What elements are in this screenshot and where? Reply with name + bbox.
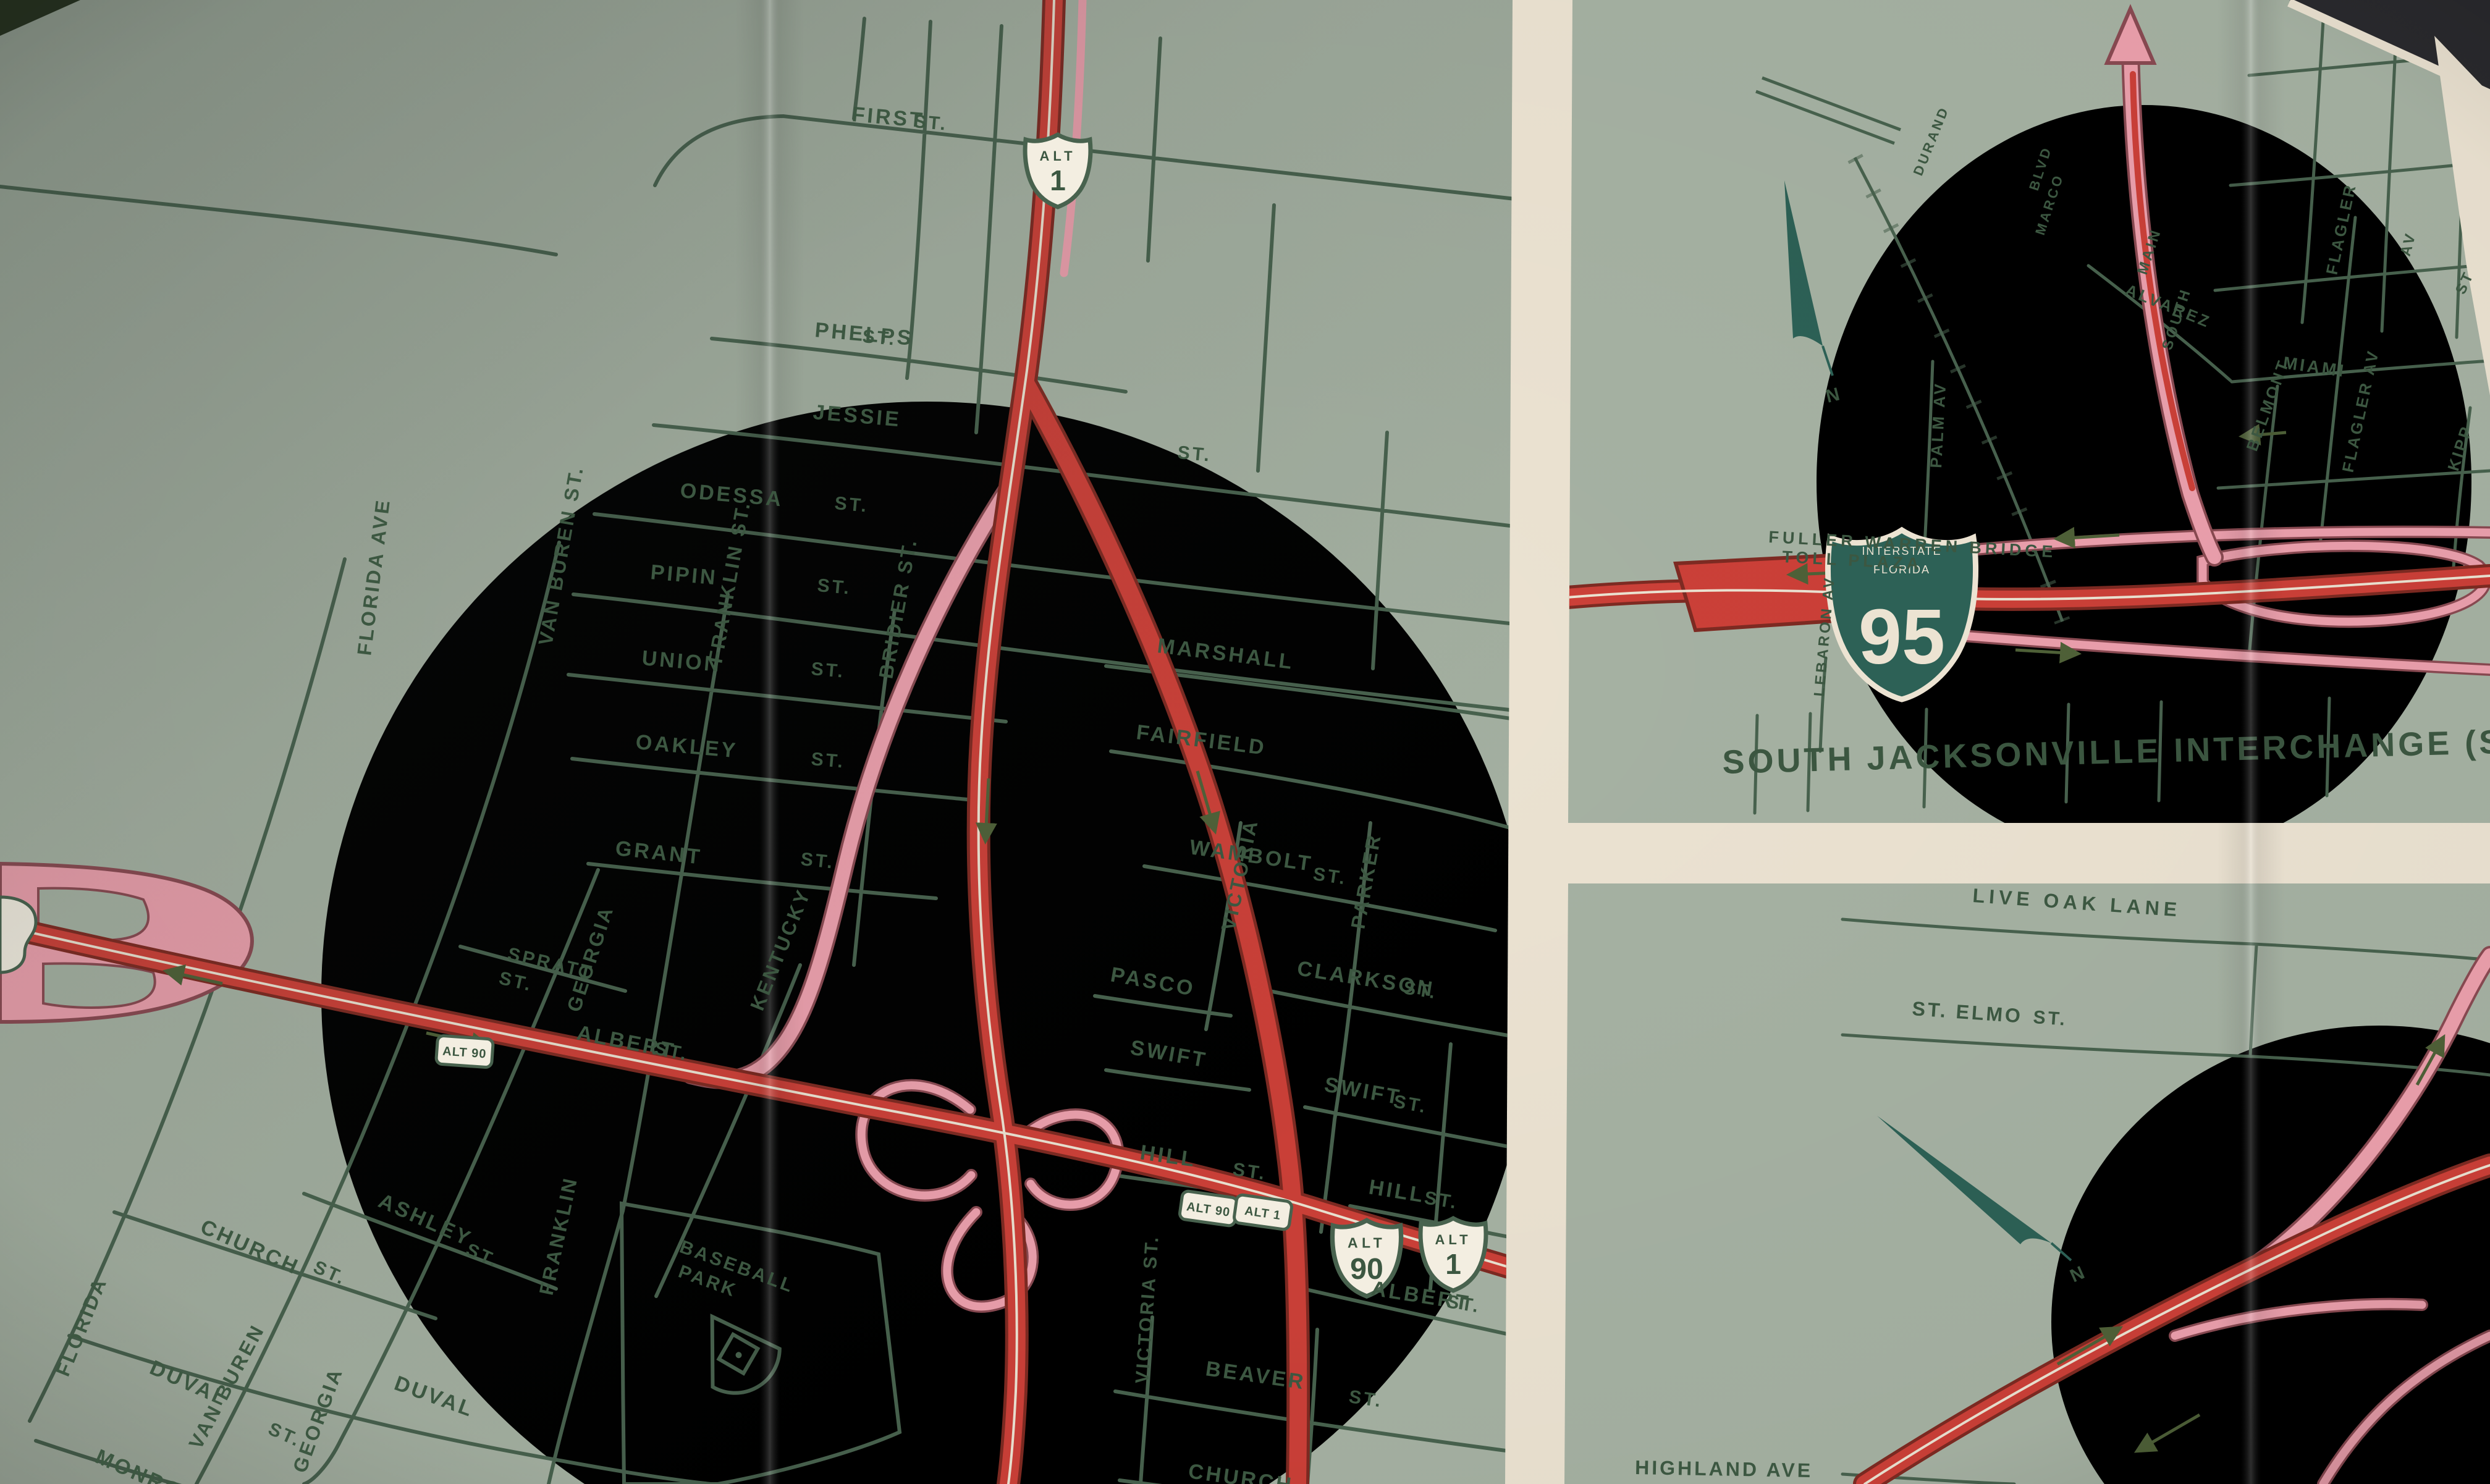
street-label: ST. [1176,442,1212,466]
svg-text:1: 1 [1050,164,1066,196]
map-svg: N SOUTH JACKSONVILLE INTERCHANGE (SOUTH … [0,0,2490,1484]
us-route-shield-small: ALT 1 [1233,1194,1293,1230]
us-route-shield-small: ALT 90 [436,1035,494,1068]
us-route-shield-small: ALT 90 [1179,1191,1238,1226]
street-label: ST. [861,326,897,350]
map-photo: N SOUTH JACKSONVILLE INTERCHANGE (SOUTH … [0,0,2490,1484]
street-label: HIGHLAND AVE [1635,1456,1813,1482]
street-label: ST. [2033,1007,2069,1030]
street-label: ST. [816,575,852,599]
street-label: ST. [810,749,846,772]
svg-text:ALT: ALT [1348,1234,1386,1250]
svg-text:ALT: ALT [1039,148,1076,164]
svg-text:ALT: ALT [1435,1232,1471,1247]
svg-text:1: 1 [1445,1248,1461,1280]
street-label: ST. [913,111,948,135]
svg-text:95: 95 [1859,593,1945,680]
street-label: ST. [834,493,869,516]
street-label: ST. [800,849,836,873]
street-label: ST. [810,659,846,682]
